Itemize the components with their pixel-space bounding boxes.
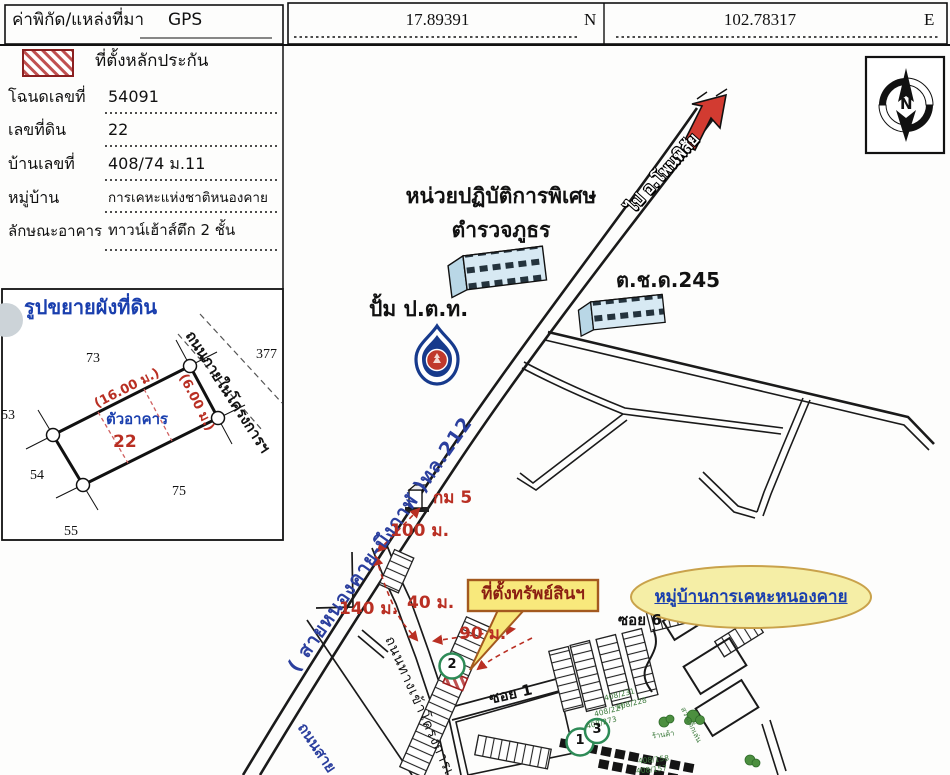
house-no-6: 408/157: [636, 764, 668, 775]
parcel-label: เลขที่ดิน: [8, 121, 66, 139]
deed-value: 54091: [108, 88, 159, 106]
hatch-legend-swatch: [23, 50, 73, 76]
survey-map-page: ค่าพิกัด/แหล่งที่มา GPS 17.89391 N 102.7…: [0, 0, 950, 775]
tcd-245-label: ต.ช.ด.245: [616, 269, 720, 292]
tcd-building-icon: [578, 294, 666, 336]
field-roads: [517, 332, 934, 518]
hatch-legend-label: ที่ตั้งหลักประกัน: [95, 52, 208, 72]
building-type-value: ทาวน์เฮ้าส์ตึก 2 ชั้น: [108, 222, 235, 239]
building-type-label: ลักษณะอาคาร: [8, 223, 102, 240]
distance-40m: 40 ม.: [407, 594, 454, 614]
parcel-value: 22: [108, 121, 128, 139]
marker-1: 1: [572, 734, 588, 749]
house-no-label: บ้านเลขที่: [8, 155, 75, 173]
adjacent-54: 54: [30, 468, 44, 484]
village-ellipse-label: หมู่บ้านการเคหะหนองคาย: [636, 588, 866, 608]
village-row-label: หมู่บ้าน: [8, 189, 59, 207]
property-callout-label: ที่ตั้งทรัพย์สินฯ: [468, 585, 598, 605]
building-footprint-label: ตัวอาคาร: [106, 411, 168, 428]
ptt-logo-icon: [416, 326, 458, 384]
village-row-value: การเคหะแห่งชาติหนองคาย: [108, 191, 268, 207]
tree-icons: [659, 710, 760, 767]
adjacent-55: 55: [64, 524, 78, 540]
latitude-dir: N: [584, 10, 596, 30]
police-building-icon: [447, 246, 547, 297]
coords-source-value: GPS: [168, 11, 202, 31]
km5-label: กม 5: [433, 489, 472, 509]
plot-panel-title: รูปขยายผังที่ดิน: [24, 296, 157, 319]
house-no-value: 408/74 ม.11: [108, 155, 205, 173]
police-unit-line1: หน่วยปฏิบัติการพิเศษ: [390, 184, 612, 208]
distance-140m: 140 ม.: [339, 600, 398, 620]
marker-3: 3: [589, 723, 605, 738]
deed-label: โฉนดเลขที่: [8, 88, 86, 106]
adjacent-53: 53: [1, 408, 15, 424]
marker-2: 2: [444, 658, 460, 673]
distance-100m: 100 ม.: [390, 522, 449, 542]
adjacent-75: 75: [172, 484, 186, 500]
distance-90m: 90 ม.: [459, 625, 506, 645]
adjacent-73: 73: [86, 351, 100, 367]
plot-parcel-number: 22: [113, 433, 137, 453]
compass-n-label: N: [900, 96, 913, 113]
coords-source-label: ค่าพิกัด/แหล่งที่มา: [12, 11, 144, 31]
longitude-dir: E: [924, 10, 934, 30]
soi6-label: ซอย 6: [618, 612, 662, 629]
longitude-value: 102.78317: [615, 10, 905, 30]
ptt-station-label: ปั้ม ป.ต.ท.: [369, 297, 468, 321]
police-unit-line2: ตำรวจภูธร: [390, 218, 612, 242]
adjacent-377: 377: [256, 347, 277, 363]
latitude-value: 17.89391: [290, 10, 585, 30]
